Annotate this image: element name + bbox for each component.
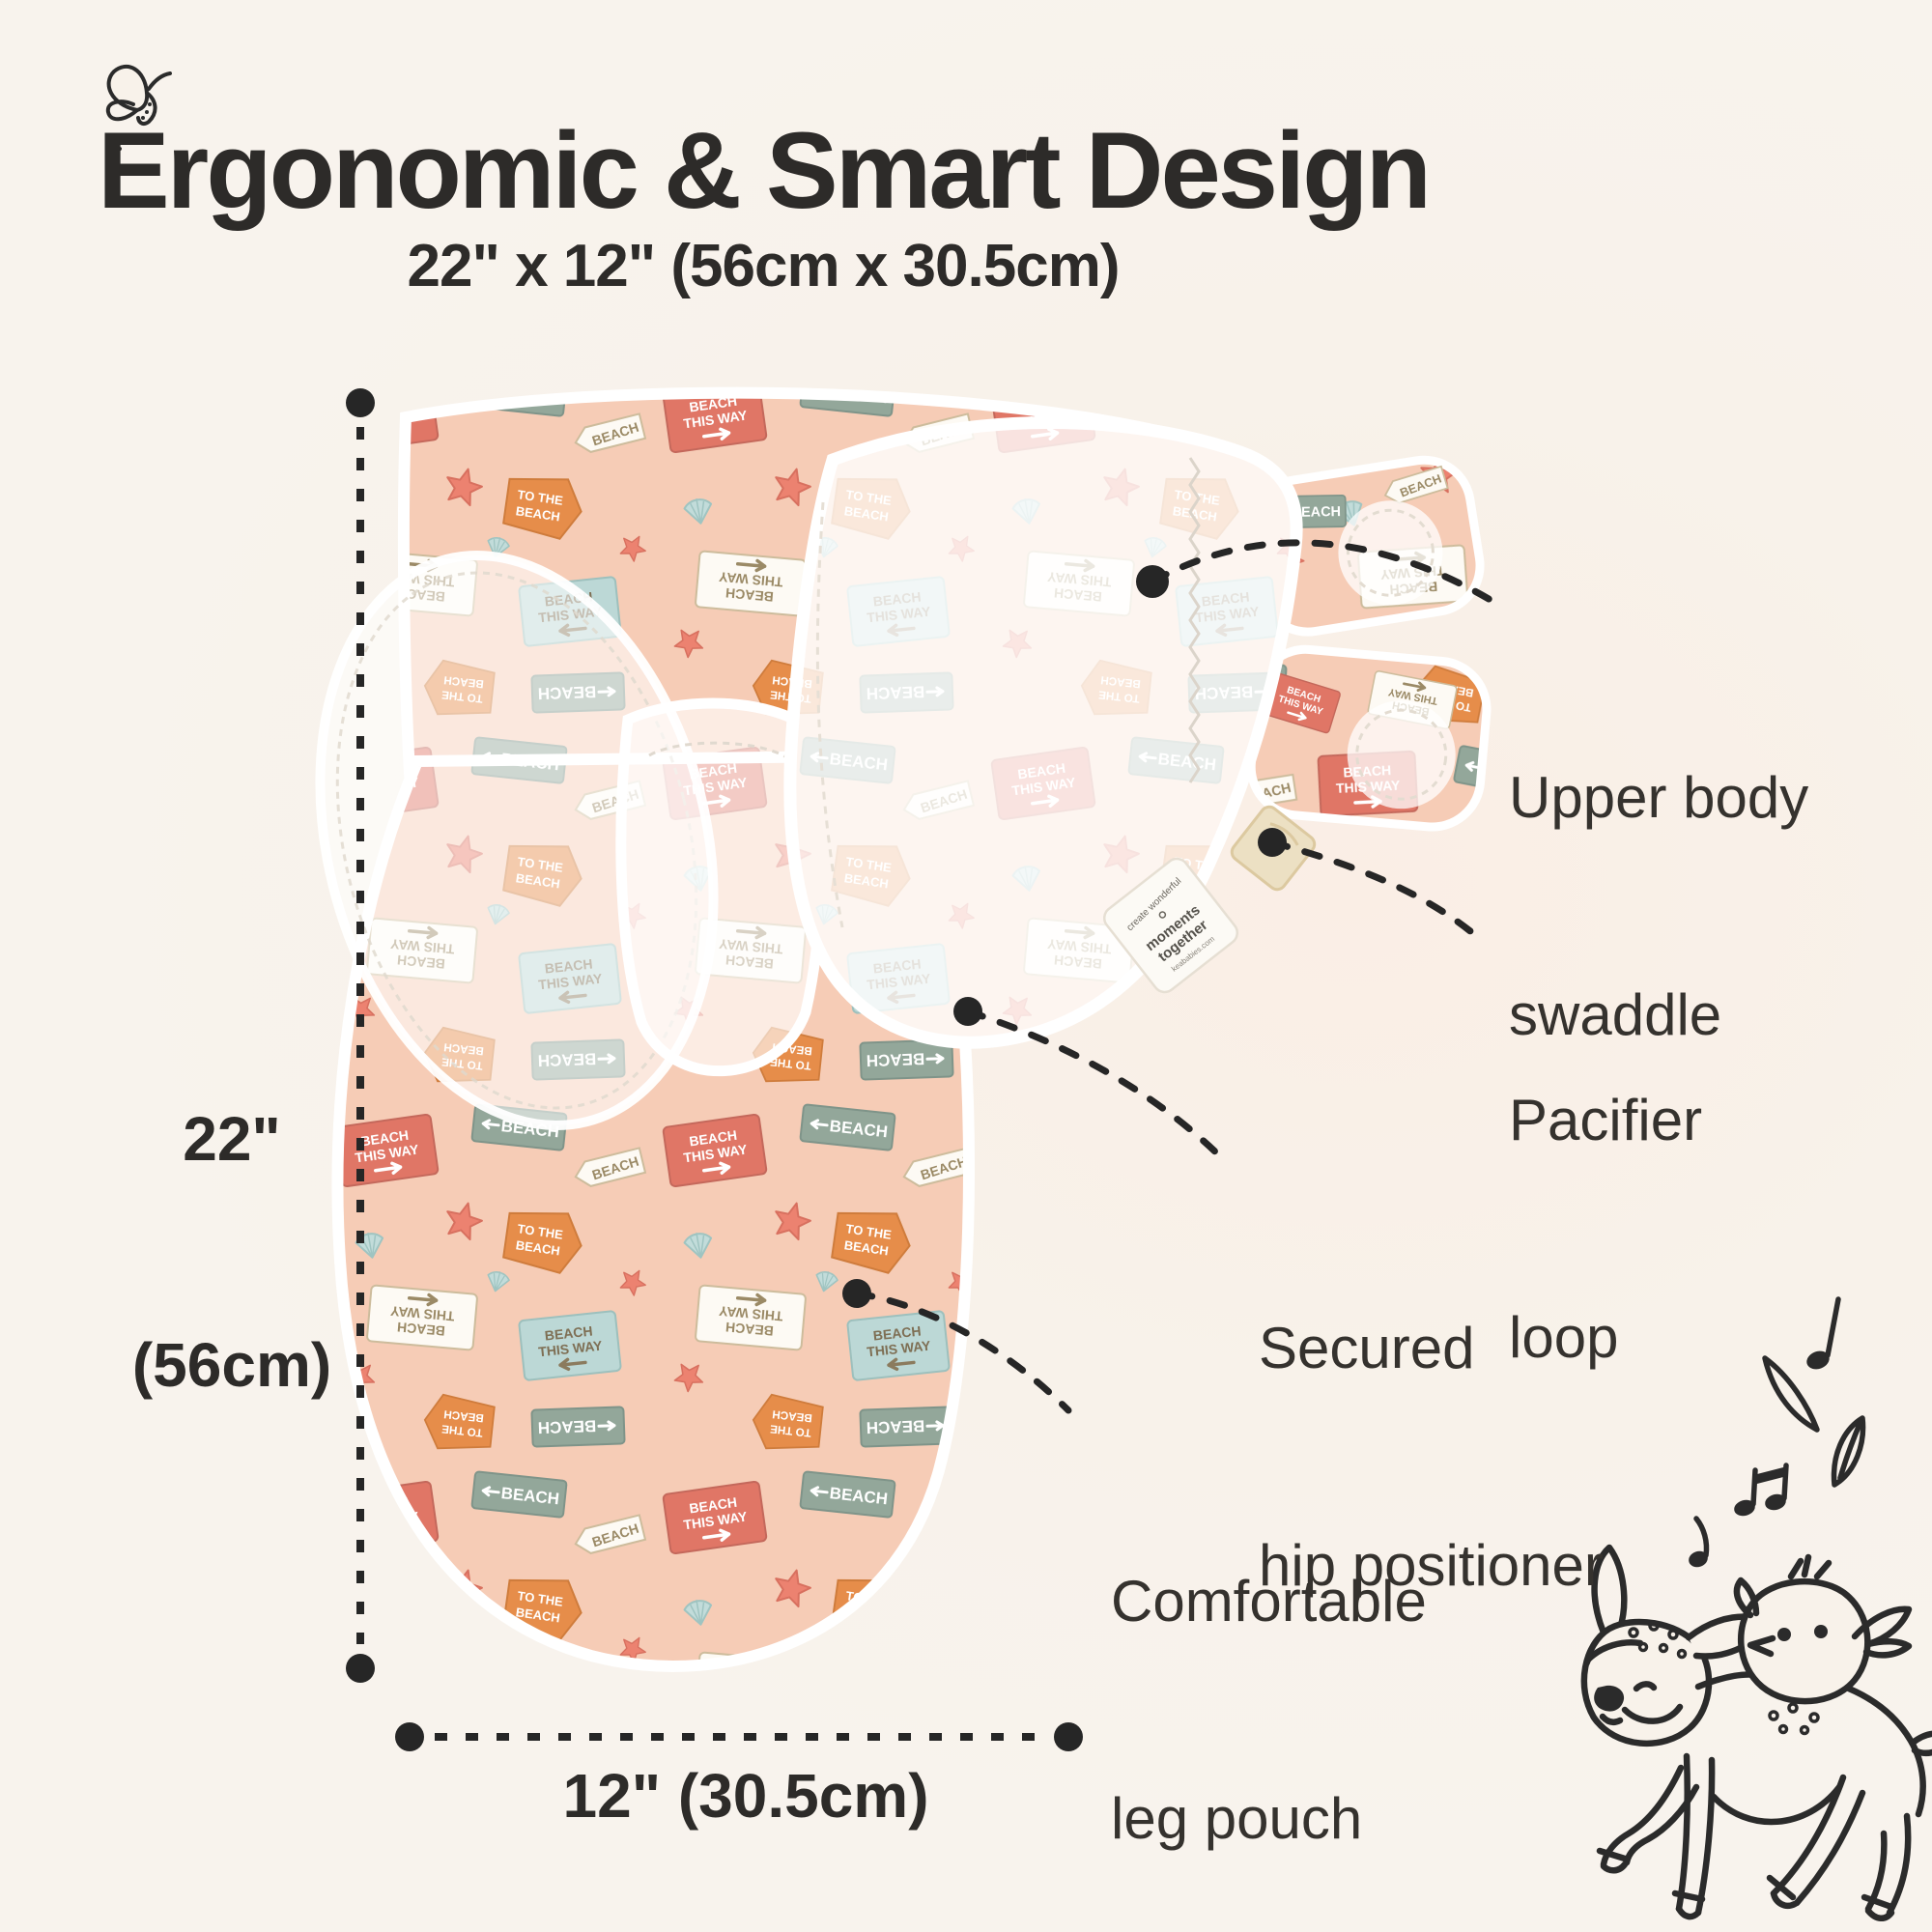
callout-line: Comfortable [1111,1565,1427,1637]
dot-hip [953,997,982,1026]
fastening-tab-lower [1247,645,1491,831]
callout-line: Upper body [1509,761,1808,834]
callout-line: Pacifier [1509,1084,1702,1156]
music-notes-icon [1687,1299,1863,1570]
height-dimension-cm: (56cm) [39,1327,425,1403]
dot-pacifier [1258,828,1287,857]
dot-upper-body [1136,565,1169,598]
height-dimension-inches: 22" [39,1101,425,1177]
height-dimension-label: 22" (56cm) [39,951,425,1553]
width-dimension-label: 12" (30.5cm) [359,1760,1132,1832]
deer-and-bird-illustration [1584,1548,1932,1918]
infographic-page: BEACH THIS WAY BEACH THIS WAY BEACH THIS… [0,0,1932,1932]
dot-leg [842,1279,871,1308]
callout-comfortable-leg-pouch: Comfortable leg pouch [1111,1420,1427,1932]
callout-line: Secured [1259,1312,1604,1384]
page-title: Ergonomic & Smart Design [58,114,1468,228]
page-subtitle: 22" x 12" (56cm x 30.5cm) [58,232,1468,300]
callout-line: leg pouch [1111,1782,1427,1855]
